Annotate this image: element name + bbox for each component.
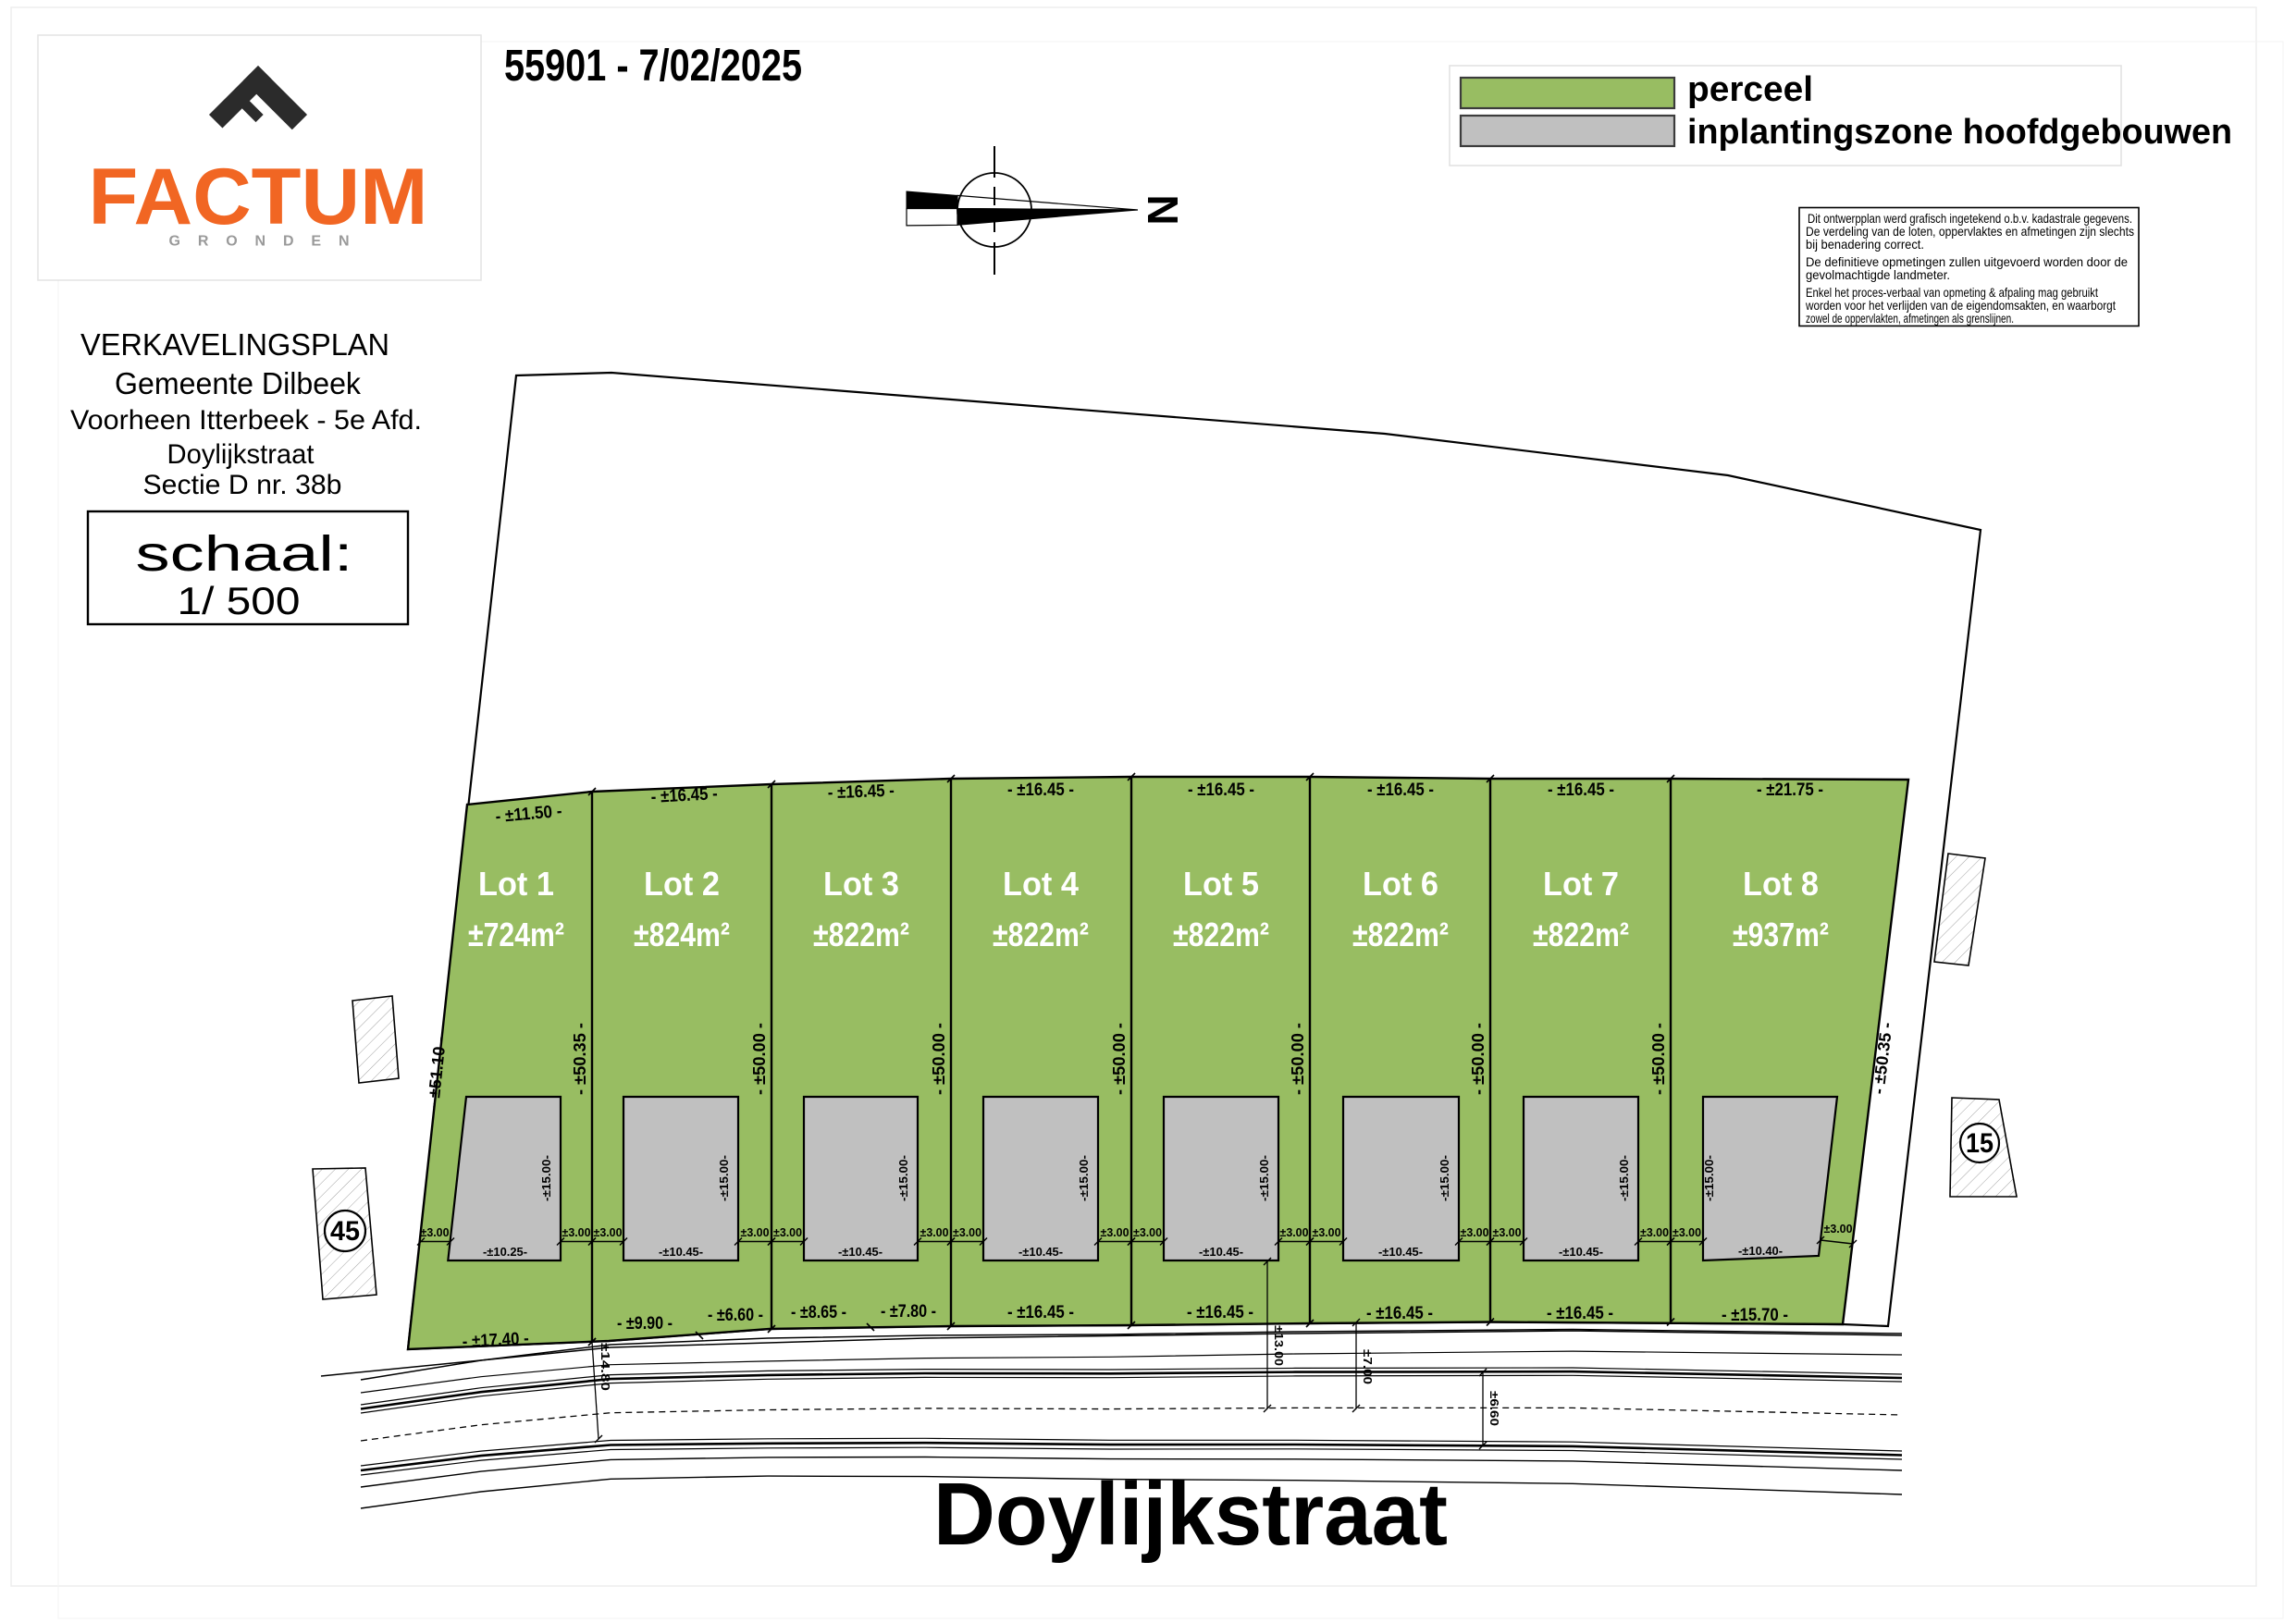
svg-text:- ±15.70 -: - ±15.70 - <box>1722 1306 1788 1325</box>
svg-text:schaal:: schaal: <box>136 526 353 582</box>
svg-text:perceel: perceel <box>1687 70 1813 109</box>
svg-text:Lot 6: Lot 6 <box>1363 865 1438 903</box>
svg-text:N: N <box>1139 194 1187 225</box>
svg-text:±824m²: ±824m² <box>634 916 730 953</box>
svg-text:Lot 4: Lot 4 <box>1003 865 1079 903</box>
svg-text:- ±16.45 -: - ±16.45 - <box>1187 1303 1253 1322</box>
svg-text:-±15.00-: -±15.00- <box>896 1155 910 1201</box>
svg-text:Lot 1: Lot 1 <box>478 865 554 903</box>
svg-text:45: 45 <box>330 1216 360 1247</box>
svg-text:±822m²: ±822m² <box>1352 916 1449 953</box>
svg-text:-±10.45-: -±10.45- <box>1378 1245 1423 1259</box>
svg-text:- ±16.45 -: - ±16.45 - <box>1007 781 1074 800</box>
svg-text:-±10.25-: -±10.25- <box>483 1245 527 1259</box>
svg-text:±3.00: ±3.00 <box>1673 1226 1701 1239</box>
svg-text:- ±6.60 -: - ±6.60 - <box>708 1306 763 1325</box>
svg-text:±3.00: ±3.00 <box>1280 1226 1309 1239</box>
svg-text:- ±17.40 -: - ±17.40 - <box>462 1329 529 1352</box>
svg-text:-±15.00-: -±15.00- <box>539 1155 553 1201</box>
svg-text:±724m²: ±724m² <box>468 916 564 953</box>
svg-text:- ±16.45 -: - ±16.45 - <box>1007 1303 1074 1322</box>
svg-text:±13.00: ±13.00 <box>1272 1325 1286 1366</box>
svg-text:- ±8.65 -: - ±8.65 - <box>791 1303 846 1322</box>
svg-text:VERKAVELINGSPLAN: VERKAVELINGSPLAN <box>80 327 389 362</box>
svg-text:- ±21.75 -: - ±21.75 - <box>1757 781 1823 800</box>
svg-text:±3.00: ±3.00 <box>1493 1226 1522 1239</box>
svg-text:-±10.40-: -±10.40- <box>1738 1244 1783 1258</box>
svg-text:-±15.00-: -±15.00- <box>1077 1155 1091 1201</box>
svg-text:±937m²: ±937m² <box>1733 916 1829 953</box>
svg-text:±3.00: ±3.00 <box>741 1226 770 1239</box>
svg-text:-±10.45-: -±10.45- <box>1199 1245 1243 1259</box>
svg-text:gevolmachtigde landmeter.: gevolmachtigde landmeter. <box>1806 267 1950 282</box>
svg-text:- ±50.00 -: - ±50.00 - <box>750 1023 769 1095</box>
svg-text:- ±7.80 -: - ±7.80 - <box>881 1302 936 1322</box>
svg-text:-±15.00-: -±15.00- <box>1438 1155 1451 1201</box>
svg-text:Sectie D nr. 38b: Sectie D nr. 38b <box>143 470 342 500</box>
svg-text:Doylijkstraat: Doylijkstraat <box>167 439 315 470</box>
svg-text:- ±16.45 -: - ±16.45 - <box>1366 1304 1433 1323</box>
svg-text:zowel de oppervlakten, afmetin: zowel de oppervlakten, afmetingen als gr… <box>1806 311 2014 326</box>
svg-text:- ±50.00 -: - ±50.00 - <box>1649 1023 1668 1095</box>
svg-text:-±15.00-: -±15.00- <box>1257 1155 1271 1201</box>
svg-text:-±15.00-: -±15.00- <box>1702 1155 1716 1201</box>
svg-text:±3.00: ±3.00 <box>562 1226 591 1239</box>
svg-text:FACTUM: FACTUM <box>89 153 428 241</box>
svg-text:-±10.45-: -±10.45- <box>1559 1245 1603 1259</box>
svg-text:±3.00: ±3.00 <box>953 1226 981 1239</box>
svg-text:-±10.45-: -±10.45- <box>838 1245 883 1259</box>
svg-text:Lot 7: Lot 7 <box>1543 865 1619 903</box>
svg-text:15: 15 <box>1966 1128 1994 1159</box>
svg-text:±3.00: ±3.00 <box>1101 1226 1129 1239</box>
svg-text:Voorheen Itterbeek - 5e Afd.: Voorheen Itterbeek - 5e Afd. <box>70 405 422 436</box>
svg-text:±3.00: ±3.00 <box>920 1226 949 1239</box>
svg-text:- ±50.00 -: - ±50.00 - <box>1110 1023 1129 1095</box>
svg-text:±3.00: ±3.00 <box>773 1226 802 1239</box>
svg-text:±3.00: ±3.00 <box>421 1226 450 1239</box>
svg-text:±3.00: ±3.00 <box>1133 1226 1162 1239</box>
svg-text:±3.00: ±3.00 <box>1313 1226 1341 1239</box>
svg-text:Lot 5: Lot 5 <box>1183 865 1259 903</box>
svg-text:- ±9.90 -: - ±9.90 - <box>617 1314 673 1334</box>
svg-text:55901 - 7/02/2025: 55901 - 7/02/2025 <box>504 42 802 91</box>
svg-text:Lot 3: Lot 3 <box>823 865 899 903</box>
svg-text:- ±16.45 -: - ±16.45 - <box>1367 781 1434 800</box>
svg-text:±822m²: ±822m² <box>813 916 909 953</box>
svg-text:±3.00: ±3.00 <box>1824 1223 1853 1236</box>
svg-text:-±15.00-: -±15.00- <box>1617 1155 1631 1201</box>
svg-text:- ±50.00 -: - ±50.00 - <box>1289 1023 1307 1095</box>
svg-text:- ±16.45 -: - ±16.45 - <box>1547 1304 1613 1323</box>
svg-text:-±10.45-: -±10.45- <box>659 1245 703 1259</box>
svg-text:Doylijkstraat: Doylijkstraat <box>933 1465 1448 1564</box>
svg-text:±7.00: ±7.00 <box>1361 1349 1375 1384</box>
svg-text:Lot 2: Lot 2 <box>644 865 720 903</box>
svg-text:Gemeente Dilbeek: Gemeente Dilbeek <box>115 366 361 400</box>
svg-text:- ±16.45 -: - ±16.45 - <box>1548 781 1614 800</box>
svg-text:±14.80: ±14.80 <box>599 1343 612 1391</box>
svg-text:Lot 8: Lot 8 <box>1743 865 1819 903</box>
svg-text:- ±16.45 -: - ±16.45 - <box>827 781 895 804</box>
svg-text:inplantingszone hoofdgebouwen: inplantingszone hoofdgebouwen <box>1687 113 2232 152</box>
svg-text:±3.00: ±3.00 <box>1640 1226 1669 1239</box>
svg-text:bij benadering correct.: bij benadering correct. <box>1806 237 1924 252</box>
svg-text:- ±16.45 -: - ±16.45 - <box>1188 781 1254 800</box>
svg-text:±3.00: ±3.00 <box>1461 1226 1489 1239</box>
svg-text:- ±50.35 -: - ±50.35 - <box>571 1023 589 1095</box>
svg-text:±822m²: ±822m² <box>993 916 1089 953</box>
svg-text:- ±50.00 -: - ±50.00 - <box>930 1023 948 1095</box>
svg-text:- ±50.00 -: - ±50.00 - <box>1469 1023 1487 1095</box>
svg-text:-±15.00-: -±15.00- <box>717 1155 731 1201</box>
svg-text:±6.60: ±6.60 <box>1487 1391 1501 1426</box>
svg-text:±822m²: ±822m² <box>1533 916 1629 953</box>
svg-text:±822m²: ±822m² <box>1173 916 1269 953</box>
svg-text:- ±16.45 -: - ±16.45 - <box>650 784 718 807</box>
svg-text:-±10.45-: -±10.45- <box>1018 1245 1063 1259</box>
svg-text:1/ 500: 1/ 500 <box>178 579 301 622</box>
svg-text:±3.00: ±3.00 <box>594 1226 623 1239</box>
